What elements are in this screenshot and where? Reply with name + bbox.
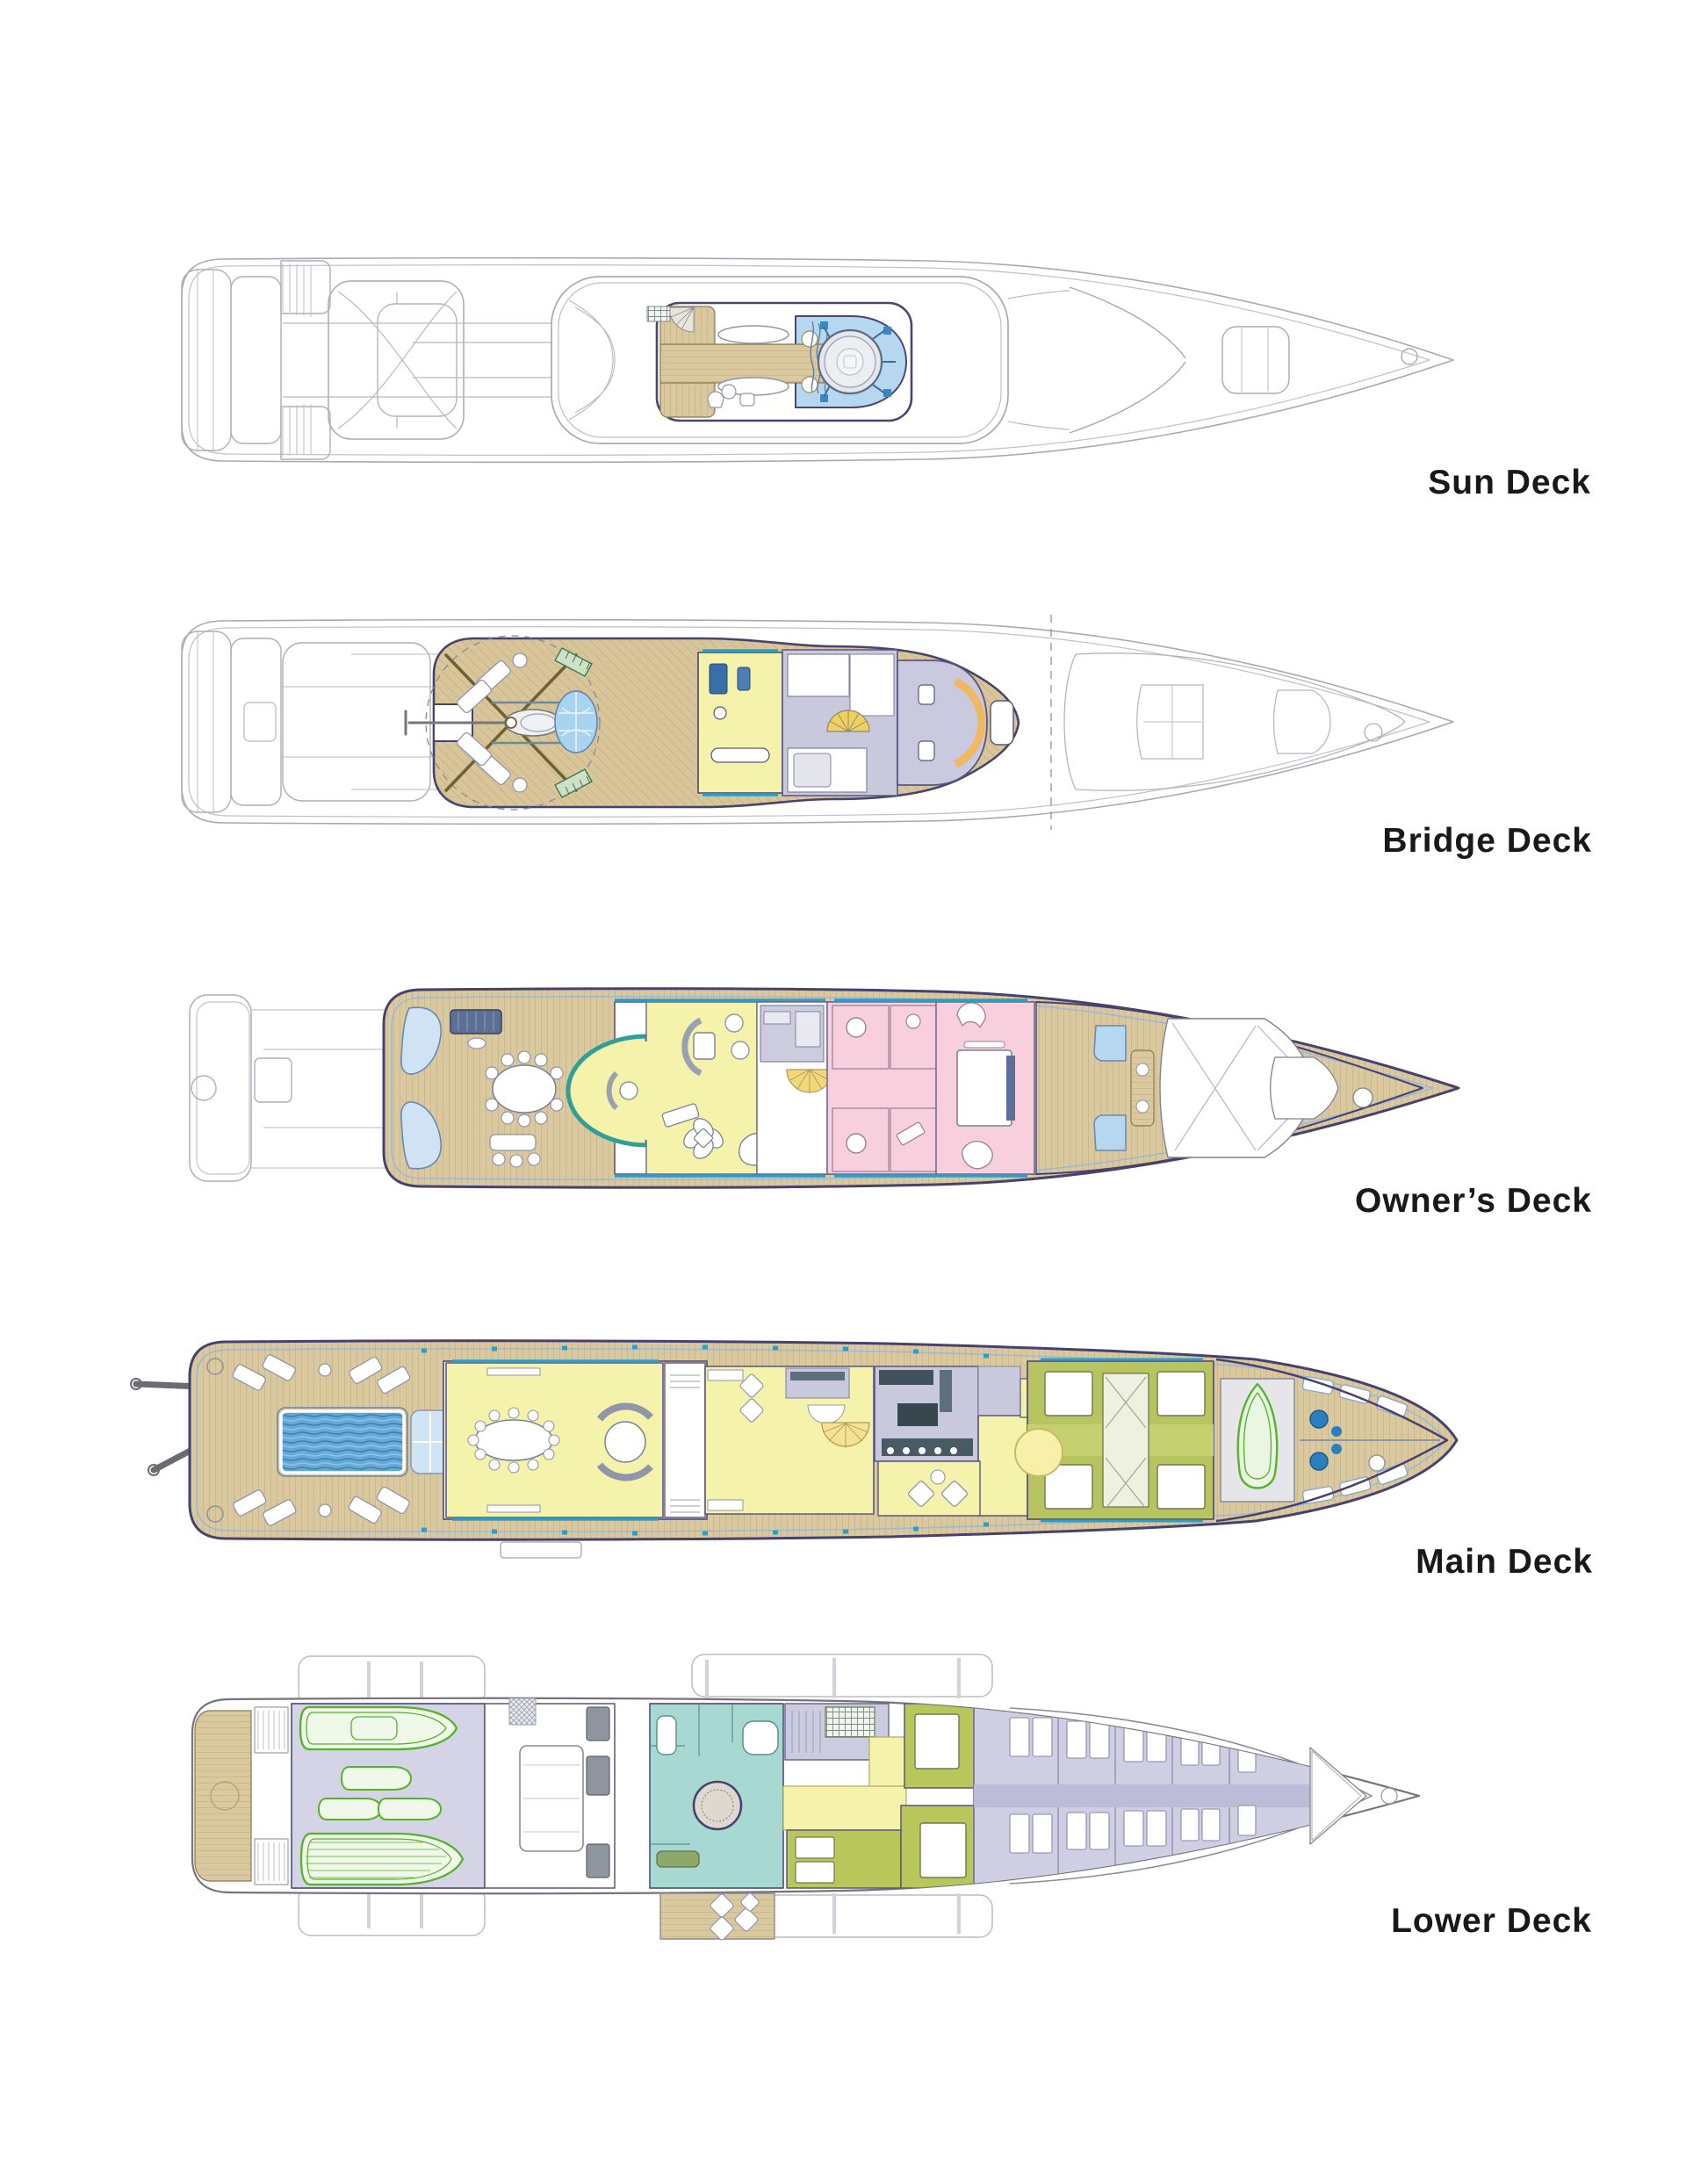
svg-text:Owner’s Deck: Owner’s Deck xyxy=(1355,1182,1592,1220)
svg-text:Lower Deck: Lower Deck xyxy=(1391,1902,1592,1940)
svg-text:Main Deck: Main Deck xyxy=(1416,1543,1593,1581)
svg-text:Bridge Deck: Bridge Deck xyxy=(1382,822,1592,860)
svg-text:Sun Deck: Sun Deck xyxy=(1428,464,1591,501)
